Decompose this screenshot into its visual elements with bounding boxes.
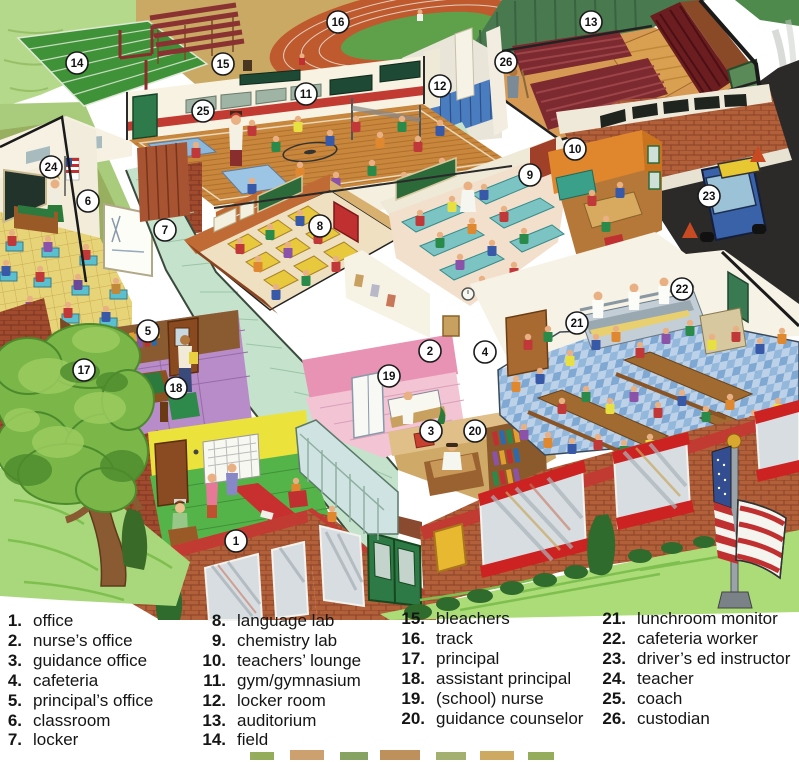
svg-text:4: 4	[482, 347, 489, 359]
svg-text:24: 24	[45, 162, 58, 174]
svg-text:9: 9	[527, 170, 533, 182]
svg-text:23: 23	[703, 191, 716, 203]
svg-text:17: 17	[78, 365, 91, 377]
svg-text:2: 2	[427, 346, 433, 358]
svg-text:11: 11	[300, 89, 313, 101]
svg-text:1: 1	[233, 536, 240, 548]
svg-text:15: 15	[217, 59, 230, 71]
svg-text:10: 10	[569, 144, 582, 156]
svg-text:19: 19	[383, 371, 396, 383]
svg-text:13: 13	[585, 17, 598, 29]
svg-text:12: 12	[434, 81, 447, 93]
svg-text:16: 16	[332, 17, 345, 29]
svg-text:3: 3	[428, 426, 434, 438]
svg-text:7: 7	[162, 225, 168, 237]
svg-text:18: 18	[170, 383, 183, 395]
svg-text:14: 14	[71, 58, 84, 70]
svg-text:22: 22	[676, 284, 689, 296]
svg-text:21: 21	[571, 318, 584, 330]
svg-text:5: 5	[145, 326, 152, 338]
svg-text:25: 25	[197, 106, 210, 118]
svg-text:20: 20	[469, 426, 482, 438]
svg-text:26: 26	[500, 57, 513, 69]
svg-text:8: 8	[317, 221, 324, 233]
svg-text:6: 6	[85, 196, 91, 208]
